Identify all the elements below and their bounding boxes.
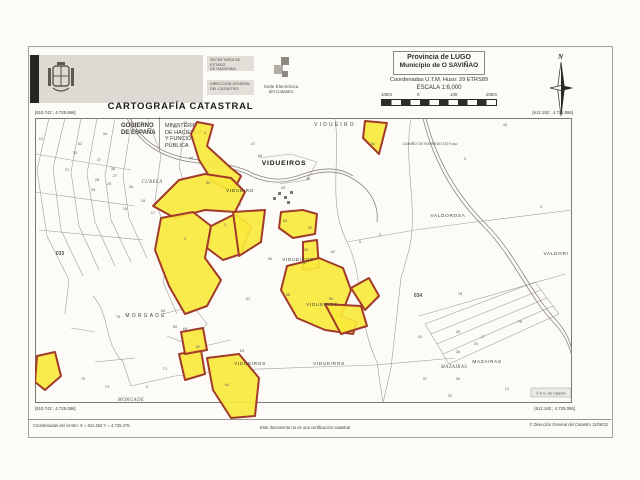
- parcel-number: 82: [331, 249, 336, 254]
- parcel-boundary-line: [37, 118, 69, 314]
- parcel-number: 63: [258, 153, 263, 158]
- highlighted-parcel: [363, 121, 387, 154]
- highlighted-parcel: [179, 350, 205, 380]
- parcel-number: 29: [107, 181, 112, 186]
- place-label: VALDORI: [544, 251, 569, 257]
- place-label: CAMIÑO DE SOBREDO DO Fuso: [403, 141, 458, 146]
- building-footprint: [284, 196, 287, 199]
- parcel-boundary-line: [383, 278, 401, 403]
- parcel-boundary-line: [87, 118, 115, 266]
- parcel-number: 56: [268, 256, 273, 261]
- place-label: MAZAIRAS: [440, 365, 467, 370]
- parcel-number: 46: [306, 176, 311, 181]
- parcel-number: 43: [281, 185, 286, 190]
- logo-left-bar: [30, 55, 39, 103]
- place-label: MORGADE: [125, 313, 166, 319]
- parcel-number: 33: [73, 150, 78, 155]
- parcel-number: 38: [111, 166, 116, 171]
- parcel-boundary-line: [425, 324, 449, 364]
- parcel-number: 26: [129, 184, 134, 189]
- parcel-number: 62: [196, 344, 201, 349]
- road-line: [130, 118, 252, 173]
- coord-top-right: [612.182 ; 4.725.866]: [491, 110, 573, 115]
- parcel-number: 61: [246, 296, 251, 301]
- parcel-boundary-line: [335, 118, 383, 403]
- parcel-number: 20: [474, 341, 479, 346]
- highlighted-parcel: [279, 210, 317, 238]
- parcel-number: 28: [95, 177, 100, 182]
- building-footprint: [290, 191, 293, 194]
- parcel-number: 54: [371, 141, 376, 146]
- parcel-number: 75: [518, 319, 523, 324]
- parcel-number: 12: [39, 136, 44, 141]
- parcel-number: 74: [105, 384, 110, 389]
- place-label: VIDUEIROS: [313, 361, 345, 367]
- copyright-label: © Dirección General del Catastro 11/06/2…: [440, 422, 608, 427]
- highlighted-parcel: [153, 174, 245, 218]
- parcel-number: 17: [151, 210, 156, 215]
- parcel-number: 17: [481, 334, 486, 339]
- parcel-number: 37: [423, 376, 428, 381]
- place-label: VIDUEIROS: [234, 361, 266, 367]
- parcel-number: 50: [304, 247, 309, 252]
- parcel-boundary-line: [449, 314, 559, 364]
- parcel-number: 45: [183, 120, 188, 125]
- north-arrow-icon: N: [541, 50, 581, 118]
- parcel-number: 53: [283, 218, 288, 223]
- parcel-number: 71: [163, 366, 168, 371]
- parcel-number: 4: [540, 204, 543, 209]
- spain-coat-of-arms-icon: [47, 60, 75, 98]
- parcel-number: 25: [91, 187, 96, 192]
- parcel-number: 27: [113, 173, 118, 178]
- parcel-boundary-line: [35, 192, 135, 206]
- place-label: 034: [414, 293, 423, 299]
- place-label: CUBELA: [141, 180, 162, 185]
- parcel-number: 3: [464, 156, 467, 161]
- parcel-boundary-line: [71, 118, 99, 270]
- parcel-boundary-line: [35, 154, 131, 170]
- center-coordinates-label: Coordenadas del centro: X = 611.462 Y = …: [33, 423, 130, 428]
- parcel-number: 59: [206, 180, 211, 185]
- parcel-number: 2: [146, 384, 149, 389]
- building-footprint: [278, 192, 281, 195]
- parcel-number: 26: [456, 349, 461, 354]
- place-label: 033: [56, 251, 65, 257]
- scalebar-200m: 200m: [486, 92, 497, 97]
- road-line: [127, 118, 251, 176]
- parcel-number: 37: [97, 157, 102, 162]
- parcel-number: 47: [251, 141, 256, 146]
- parcel-number: 76: [116, 314, 121, 319]
- sede-electronica-logo: Sede Electrónica del Catastro: [256, 56, 306, 100]
- place-label: VIDUEIROS: [282, 257, 314, 263]
- location-box: Provincia de LUGO Municipio de O SAVIÑAO: [393, 51, 485, 75]
- parcel-boundary-line: [105, 118, 131, 262]
- place-label: MAZAIRAS: [472, 359, 501, 365]
- disclaimer-label: Este documento no es una certificación c…: [230, 425, 380, 430]
- parcel-number: 58: [286, 292, 291, 297]
- parcel-boundary-line: [123, 118, 147, 258]
- place-label: VIDUEIRO: [226, 188, 254, 194]
- direccion-label: DIRECCIÓN GENERAL DEL CATASTRO: [207, 80, 254, 95]
- highlighted-parcel: [233, 210, 265, 256]
- building-footprint: [287, 201, 290, 204]
- scale-label: ESCALA 1:6,000: [366, 85, 512, 91]
- parcel-boundary-line: [95, 358, 135, 362]
- parcel-boundary-line: [93, 296, 131, 386]
- parcel-number: 44: [189, 155, 194, 160]
- footer-rule: [28, 419, 611, 420]
- parcel-number: 12: [505, 386, 510, 391]
- parcel-number: 15: [123, 206, 128, 211]
- parcel-number: 34: [103, 131, 108, 136]
- parcel-number: 78: [458, 291, 463, 296]
- scalebar-zero: 0: [417, 92, 419, 97]
- parcel-number: 68: [183, 326, 188, 331]
- parcel-number: 24: [173, 124, 178, 129]
- scale-bar: 100m 0 100 200m: [381, 92, 497, 107]
- sede-label: Sede Electrónica del Catastro: [256, 84, 306, 95]
- parcel-boundary-line: [131, 358, 455, 386]
- cadastral-map-document: GOBIERNO DE ESPAÑA MINISTERIO DE HACIEND…: [0, 0, 640, 480]
- road-line: [426, 118, 572, 352]
- parcel-number: 1: [239, 202, 242, 207]
- parcel-boundary-line: [437, 298, 547, 344]
- sede-squares-icon: [269, 56, 295, 82]
- parcel-number: 59: [329, 296, 334, 301]
- place-label: VALDOROSA: [431, 213, 466, 219]
- building-footprint: [273, 197, 276, 200]
- highlighted-parcel: [181, 328, 207, 354]
- parcel-number: 52: [308, 225, 313, 230]
- parcel-number: 45: [503, 122, 508, 127]
- parcel-number: 21: [65, 167, 70, 172]
- scalebar-100m-left: 100m: [381, 92, 392, 97]
- parcel-number: 18: [141, 198, 146, 203]
- parcel-number: 32: [448, 393, 453, 398]
- parcel-number: 75: [81, 376, 86, 381]
- place-label: VIDUEIROS: [262, 160, 307, 167]
- municipality-label: Municipio de O SAVIÑAO: [394, 62, 484, 69]
- place-label: VIDUEIROS: [306, 302, 338, 308]
- parcel-number: 25: [456, 329, 461, 334]
- province-label: Provincia de LUGO: [394, 54, 484, 61]
- place-label: MORGADE: [117, 398, 145, 403]
- map-copyright-text: © D.G. del Catastro: [536, 392, 566, 396]
- government-logo-block: GOBIERNO DE ESPAÑA MINISTERIO DE HACIEND…: [39, 55, 203, 103]
- parcel-number: 3: [379, 232, 382, 237]
- coord-top-left: [610.742 ; 4.725.866]: [35, 110, 117, 115]
- secretaria-label: SECRETARÍA DE ESTADO DE HACIENDA: [207, 56, 254, 71]
- parcel-number: 65: [173, 324, 178, 329]
- place-label: VIDUEIRO: [314, 122, 356, 128]
- north-letter: N: [557, 53, 564, 61]
- road-line: [353, 179, 377, 222]
- parcel-number: 63: [240, 348, 245, 353]
- highlighted-parcel: [35, 352, 61, 390]
- cadastral-map-canvas: 1234523337213828272925261815172445444476…: [35, 118, 572, 420]
- parcel-number: 30: [456, 376, 461, 381]
- utm-coordinates-label: Coordenadas U.T.M. Huso: 29 ETRS89: [366, 77, 512, 83]
- parcel-number: 52: [78, 141, 83, 146]
- parcel-boundary-line: [71, 328, 95, 332]
- parcel-number: 64: [225, 382, 230, 387]
- parcel-boundary-line: [39, 230, 143, 240]
- parcel-number: 42: [418, 334, 423, 339]
- scalebar-100: 100: [450, 92, 457, 97]
- parcel-boundary-line: [425, 282, 535, 324]
- scalebar-strip: [381, 99, 497, 106]
